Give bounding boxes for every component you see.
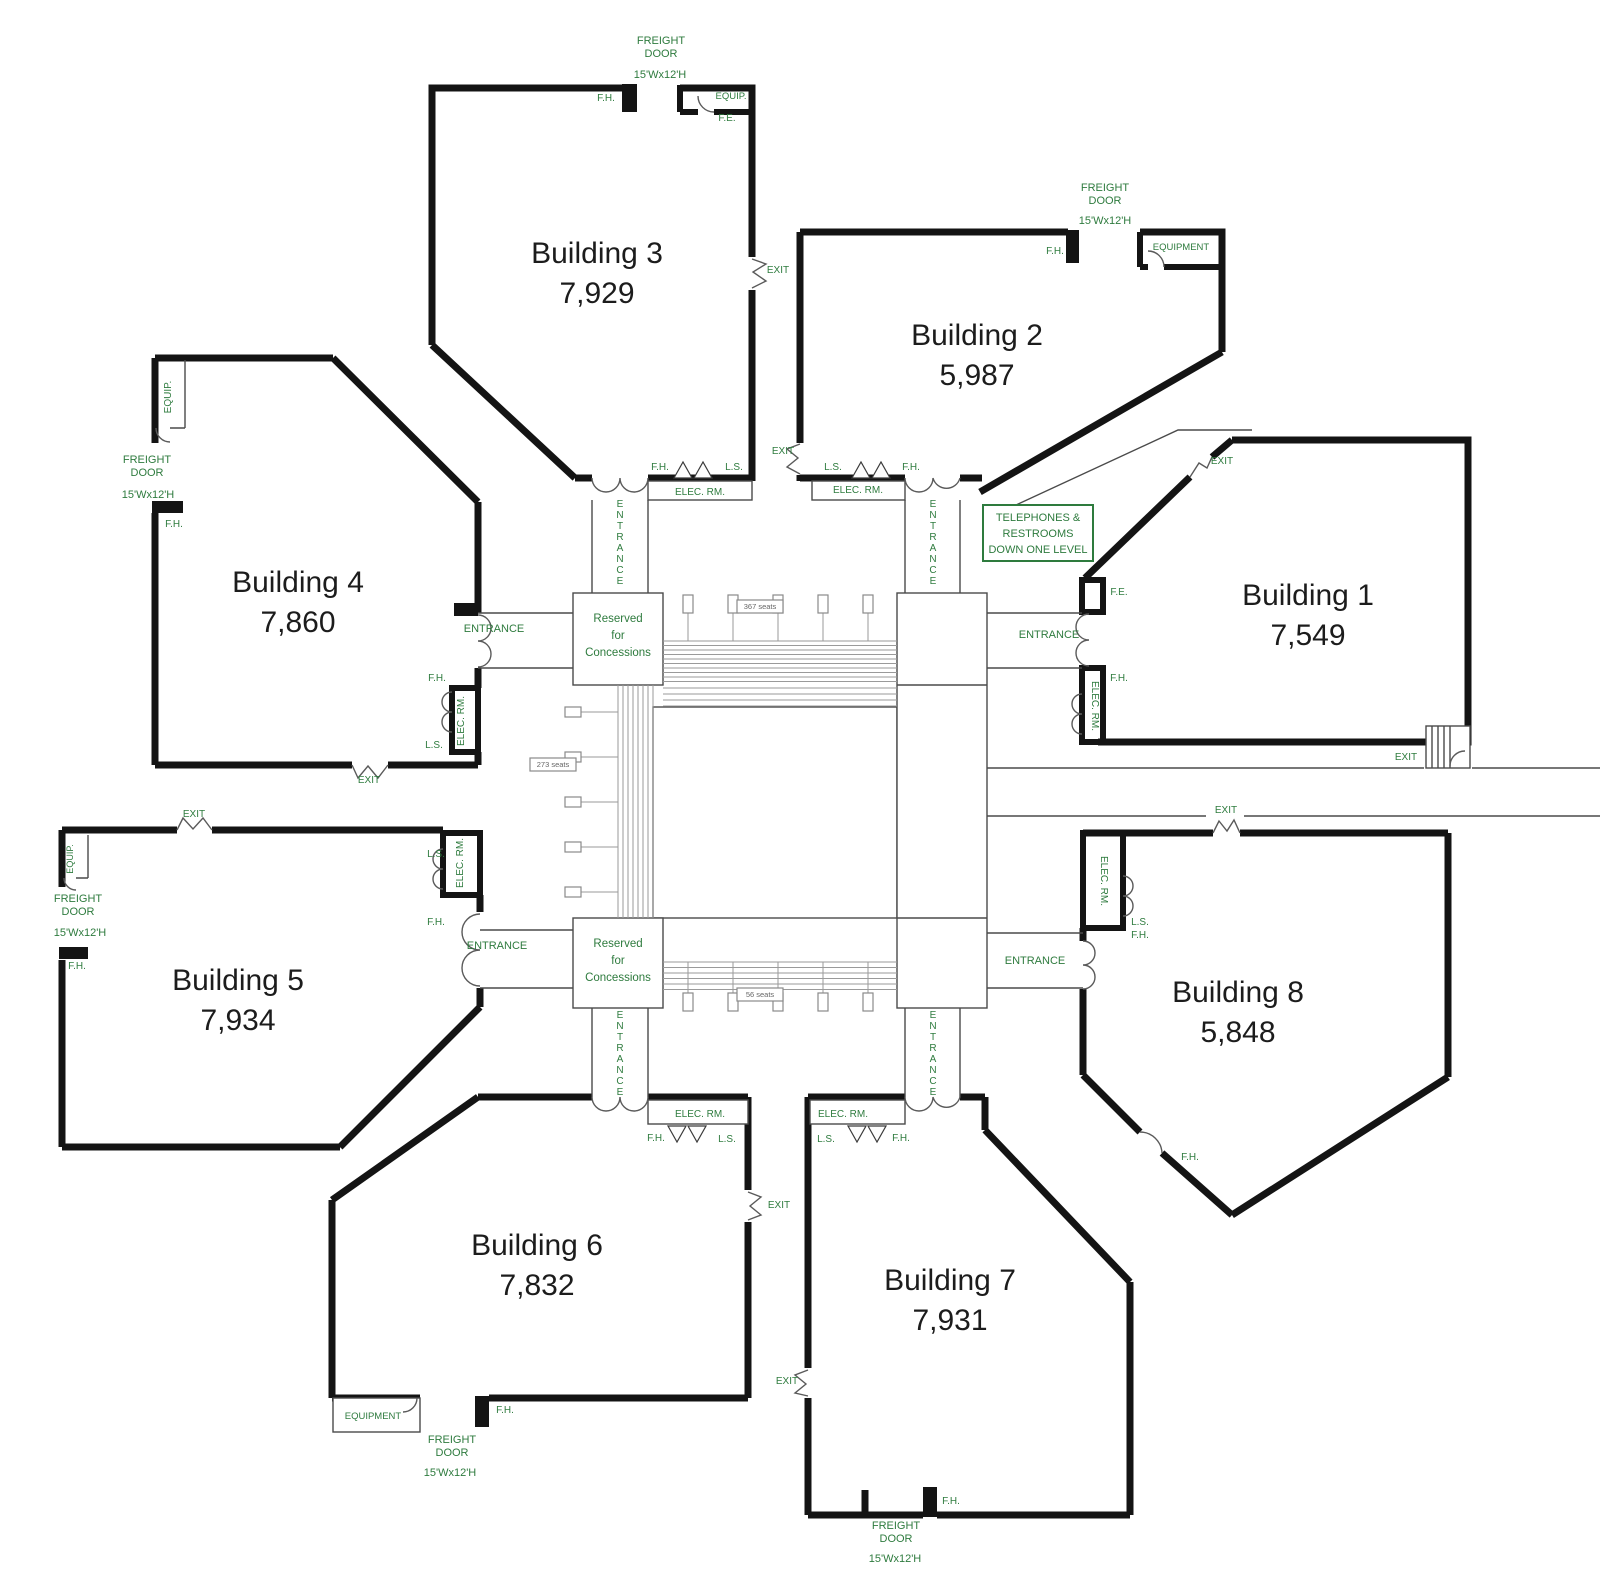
building-7-entrance: N (929, 1021, 936, 1032)
b2-elec-rm: ELEC. RM. (833, 485, 883, 496)
building-5-area: 7,934 (200, 1004, 275, 1037)
b7-freight-size: 15'Wx12'H (869, 1553, 922, 1565)
b6-freight-door-1: FREIGHT (428, 1434, 477, 1446)
b5-equip-room (76, 835, 88, 878)
building-7-entrance: E (930, 1087, 937, 1098)
b5-entrance-corridor (480, 930, 573, 988)
b8-fh-door-arc (1140, 1132, 1162, 1153)
b5-freight-size: 15'Wx12'H (54, 927, 107, 939)
b5-freight-door-1: FREIGHT (54, 893, 103, 905)
b6-fh-bottom: F.H. (496, 1405, 514, 1416)
building-2-entrance: E (930, 576, 937, 587)
b3-equip: EQUIP. (716, 91, 747, 102)
building-7-area: 7,931 (912, 1304, 987, 1337)
seat-count-bottom: 56 seats (746, 990, 775, 999)
b2-elec-door-right (872, 462, 890, 478)
b4-equip: EQUIP. (163, 381, 174, 414)
building-6-name: Building 6 (471, 1229, 603, 1262)
b3-exit: EXIT (767, 265, 789, 276)
concessions-label-1: Concessions (585, 972, 651, 984)
building-2-entrance: A (930, 543, 937, 554)
b2-entrance-doors (905, 478, 960, 492)
building-1-area: 7,549 (1270, 619, 1345, 652)
b3-elec-door-right (694, 462, 712, 478)
b7-freight-door-2: DOOR (880, 1533, 913, 1545)
b3-entrance-doors (592, 478, 648, 492)
b5-elec-rm: ELEC. RM. (455, 838, 466, 888)
b7-freight-door-1: FREIGHT (872, 1520, 921, 1532)
b3-ls: L.S. (725, 462, 743, 473)
b7-entrance-doors (905, 1097, 960, 1111)
b3-fh-top: F.H. (597, 93, 615, 104)
b4-ls: L.S. (425, 740, 443, 751)
seat-count-left: 273 seats (537, 760, 570, 769)
building-6-entrance: N (616, 1021, 623, 1032)
b4-freight-size: 15'Wx12'H (122, 489, 175, 501)
b4-entry-block (454, 603, 478, 616)
b2-elec-door-left (852, 462, 870, 478)
b3-fire-hose-block (622, 84, 637, 112)
notice-line-3: DOWN ONE LEVEL (988, 544, 1087, 556)
building-3-entrance: C (616, 565, 623, 576)
b1-exit-top-door (1190, 457, 1212, 477)
building-7-entrance: A (930, 1054, 937, 1065)
b1-elec-rm: ELEC. RM. (1089, 681, 1100, 731)
b1-entrance: ENTRANCE (1019, 629, 1080, 641)
building-3-entrance: T (617, 521, 623, 532)
building-2-entrance: R (929, 532, 936, 543)
building-2-entrance: N (929, 554, 936, 565)
b5-ls: L.S. (427, 849, 445, 860)
building-6-entrance: C (616, 1076, 623, 1087)
b2-freight-door-1: FREIGHT (1081, 182, 1130, 194)
building-6-area: 7,832 (499, 1269, 574, 1302)
b5-fh: F.H. (427, 917, 445, 928)
building-3-entrance: N (616, 554, 623, 565)
b2-ls: L.S. (824, 462, 842, 473)
building-6-outline (332, 1008, 761, 1432)
concessions-label-0: Concessions (585, 647, 651, 659)
b1-exit-top: EXIT (1211, 456, 1233, 467)
building-6-entrance: T (617, 1032, 623, 1043)
b4-fh-top: F.H. (165, 519, 183, 530)
building-1-name: Building 1 (1242, 579, 1374, 612)
b8-exit-door (1213, 820, 1240, 833)
b5-equip-door-arc (64, 878, 76, 890)
seat-count-top: 367 seats (744, 602, 777, 611)
b8-exit: EXIT (1215, 805, 1237, 816)
b6-freight-size: 15'Wx12'H (424, 1467, 477, 1479)
building-4-area: 7,860 (260, 606, 335, 639)
b1-fe-room (1082, 580, 1103, 612)
b1-fh: F.H. (1110, 673, 1128, 684)
telephones-notice: TELEPHONES & RESTROOMS DOWN ONE LEVEL (983, 505, 1093, 561)
building-2-entrance: C (929, 565, 936, 576)
building-5-name: Building 5 (172, 964, 304, 997)
building-6-entrance: E (617, 1010, 624, 1021)
b5-equip: EQUIP. (65, 844, 75, 873)
floor-plan: TELEPHONES & RESTROOMS DOWN ONE LEVEL FR… (0, 0, 1600, 1581)
b7-fh-bottom: F.H. (942, 1496, 960, 1507)
notice-line-1: TELEPHONES & (996, 512, 1081, 524)
b6-ls: L.S. (718, 1134, 736, 1145)
b8-entrance-doors (1083, 941, 1095, 989)
b4-elec-rm: ELEC. RM. (456, 696, 467, 746)
building-6-entrance: E (617, 1087, 624, 1098)
building-3-name: Building 3 (531, 237, 663, 270)
b4-fh: F.H. (428, 673, 446, 684)
b1-exit-bottom: EXIT (1395, 752, 1417, 763)
building-6-entrance: N (616, 1065, 623, 1076)
b3-freight-door-2: DOOR (645, 48, 678, 60)
building-7-name: Building 7 (884, 1264, 1016, 1297)
b2-freight-size: 15'Wx12'H (1079, 215, 1132, 227)
concessions-label-1: for (611, 955, 625, 967)
b4-freight-door-2: DOOR (131, 467, 164, 479)
b7-elec-door-left (848, 1126, 866, 1142)
b6-fh: F.H. (647, 1133, 665, 1144)
building-3-entrance: R (616, 532, 623, 543)
b6-elec-door-left (668, 1126, 686, 1142)
building-7-entrance: C (929, 1076, 936, 1087)
courtyard (653, 707, 897, 918)
b2-exit: EXIT (772, 446, 794, 457)
floor-plan-page: TELEPHONES & RESTROOMS DOWN ONE LEVEL FR… (0, 0, 1600, 1581)
b1-fe: F.E. (1110, 587, 1127, 598)
b7-fire-hose-block (923, 1487, 937, 1517)
building-7-entrance: T (930, 1032, 936, 1043)
building-2-entrance: N (929, 510, 936, 521)
building-7-entrance: N (929, 1065, 936, 1076)
building-3-entrance: E (617, 499, 624, 510)
b3-fe: F.E. (718, 113, 735, 124)
b4-fire-hose-block (152, 501, 183, 513)
b5-entrance: ENTRANCE (467, 940, 528, 952)
b3-exit-door (752, 259, 766, 288)
b8-fh: F.H. (1131, 930, 1149, 941)
building-6-entrance: R (616, 1043, 623, 1054)
building-7-outline (795, 1008, 1130, 1517)
building-6-entrance: A (617, 1054, 624, 1065)
building-2-name: Building 2 (911, 319, 1043, 352)
b6-exit-door (748, 1192, 761, 1220)
b5-freight-door-2: DOOR (62, 906, 95, 918)
b3-equip-door-arc (698, 96, 714, 112)
b5-fh-top: F.H. (68, 961, 86, 972)
b7-elec-door-right (868, 1126, 886, 1142)
b5-exit: EXIT (183, 809, 205, 820)
b4-freight-door-1: FREIGHT (123, 454, 172, 466)
b6-fire-hose-block (475, 1396, 489, 1427)
building-3-entrance: E (617, 576, 624, 587)
b2-freight-door-2: DOOR (1089, 195, 1122, 207)
building-4-name: Building 4 (232, 566, 364, 599)
building-7-entrance: E (930, 1010, 937, 1021)
b7-ls: L.S. (817, 1134, 835, 1145)
b6-entrance-doors (592, 1097, 648, 1111)
b5-fire-hose-block (59, 947, 88, 959)
b6-elec-rm: ELEC. RM. (675, 1109, 725, 1120)
b7-exit: EXIT (776, 1376, 798, 1387)
concessions-label-1: Reserved (593, 938, 642, 950)
b2-fh: F.H. (902, 462, 920, 473)
b3-fh: F.H. (651, 462, 669, 473)
b4-exit: EXIT (358, 775, 380, 786)
building-8-name: Building 8 (1172, 976, 1304, 1009)
building-7-entrance: R (929, 1043, 936, 1054)
b2-fh-top: F.H. (1046, 246, 1064, 257)
concessions-label-0: Reserved (593, 613, 642, 625)
b6-freight-door-2: DOOR (436, 1447, 469, 1459)
b6-exit: EXIT (768, 1200, 790, 1211)
building-3-entrance: A (617, 543, 624, 554)
b8-ls: L.S. (1131, 917, 1149, 928)
building-3-entrance: N (616, 510, 623, 521)
b7-elec-rm: ELEC. RM. (818, 1109, 868, 1120)
b6-equipment: EQUIPMENT (345, 1411, 402, 1422)
notice-line-2: RESTROOMS (1003, 528, 1074, 540)
b2-fire-hose-block (1066, 230, 1079, 263)
b2-equipment: EQUIPMENT (1153, 242, 1210, 253)
b8-elec-rm: ELEC. RM. (1098, 856, 1109, 906)
central-right-structure (897, 593, 987, 1008)
building-8-area: 5,848 (1200, 1016, 1275, 1049)
b6-elec-door-right (688, 1126, 706, 1142)
b8-fh-diag: F.H. (1181, 1152, 1199, 1163)
b7-fh: F.H. (892, 1133, 910, 1144)
b4-entrance: ENTRANCE (464, 623, 525, 635)
building-3-outline (432, 84, 766, 593)
building-2-entrance: E (930, 499, 937, 510)
b3-freight-size: 15'Wx12'H (634, 69, 687, 81)
b3-elec-door-left (674, 462, 692, 478)
concessions-label-0: for (611, 630, 625, 642)
b3-elec-rm: ELEC. RM. (675, 487, 725, 498)
b1-stairs (1426, 726, 1470, 768)
building-2-entrance: T (930, 521, 936, 532)
building-3-area: 7,929 (559, 277, 634, 310)
b3-freight-door-1: FREIGHT (637, 35, 686, 47)
building-2-area: 5,987 (939, 359, 1014, 392)
b8-entrance: ENTRANCE (1005, 955, 1066, 967)
b4-entrance-corridor (478, 613, 573, 668)
b2-equipment-door-arc (1148, 251, 1164, 267)
